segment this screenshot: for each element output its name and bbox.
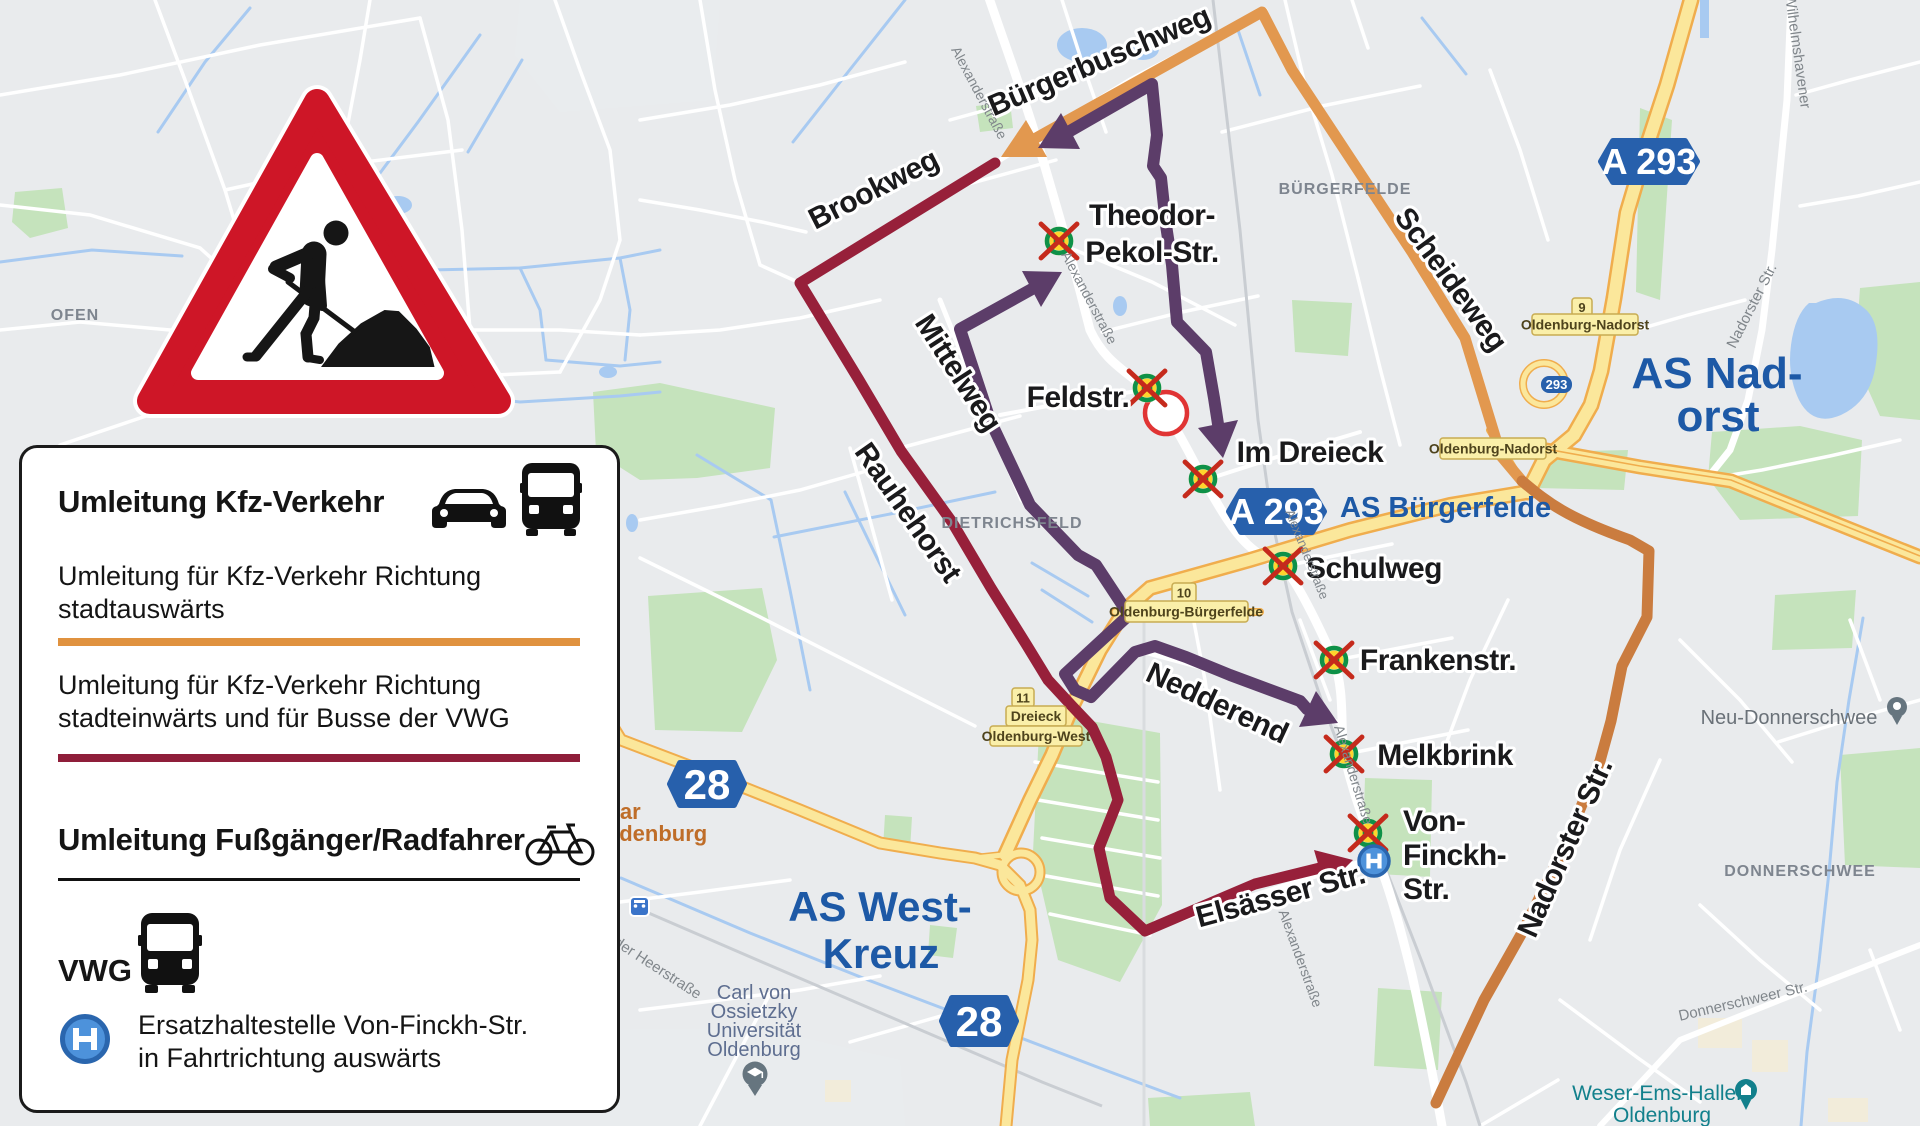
- svg-text:293: 293: [1546, 377, 1568, 392]
- svg-text:Oldenburg-Nadorst: Oldenburg-Nadorst: [1429, 441, 1558, 457]
- svg-text:Oldenburg-West: Oldenburg-West: [982, 728, 1091, 744]
- svg-text:DONNERSCHWEE: DONNERSCHWEE: [1724, 863, 1876, 880]
- svg-text:11: 11: [1016, 691, 1030, 706]
- svg-text:28: 28: [956, 998, 1003, 1045]
- svg-text:A 293: A 293: [1602, 141, 1697, 182]
- svg-text:Finckh-: Finckh-: [1403, 839, 1506, 872]
- svg-text:AS West-: AS West-: [788, 883, 972, 930]
- svg-text:BÜRGERFELDE: BÜRGERFELDE: [1279, 179, 1412, 198]
- svg-text:Weser-Ems-Hallen: Weser-Ems-Hallen: [1572, 1082, 1748, 1105]
- svg-text:Von-: Von-: [1403, 805, 1465, 838]
- svg-text:Oldenburg: Oldenburg: [1613, 1104, 1711, 1126]
- svg-text:Oldenburg-Bürgerfelde: Oldenburg-Bürgerfelde: [1109, 604, 1263, 620]
- svg-text:A 293: A 293: [1229, 491, 1324, 532]
- svg-text:Str.: Str.: [1403, 873, 1449, 906]
- svg-text:10: 10: [1177, 586, 1191, 601]
- svg-text:28: 28: [684, 761, 731, 808]
- svg-text:orst: orst: [1676, 392, 1759, 441]
- svg-text:9: 9: [1578, 300, 1585, 315]
- svg-text:Kreuz: Kreuz: [823, 930, 940, 977]
- svg-text:Neu-Donnerschwee: Neu-Donnerschwee: [1701, 707, 1878, 729]
- svg-text:DIETRICHSFELD: DIETRICHSFELD: [942, 515, 1083, 532]
- svg-text:Dreieck: Dreieck: [1011, 708, 1062, 724]
- svg-text:Im Dreieck: Im Dreieck: [1237, 436, 1385, 469]
- svg-text:Feldstr.: Feldstr.: [1027, 381, 1130, 414]
- svg-text:OFEN: OFEN: [51, 307, 99, 324]
- svg-text:Oldenburg: Oldenburg: [707, 1039, 800, 1061]
- svg-text:Melkbrink: Melkbrink: [1377, 739, 1513, 772]
- svg-text:AS Nad-: AS Nad-: [1631, 349, 1802, 398]
- svg-text:Frankenstr.: Frankenstr.: [1360, 644, 1516, 677]
- svg-text:Theodor-: Theodor-: [1089, 199, 1215, 232]
- svg-text:AS Bürgerfelde: AS Bürgerfelde: [1340, 492, 1551, 524]
- svg-text:Oldenburg-Nadorst: Oldenburg-Nadorst: [1521, 317, 1650, 333]
- svg-text:Pekol-Str.: Pekol-Str.: [1085, 236, 1218, 269]
